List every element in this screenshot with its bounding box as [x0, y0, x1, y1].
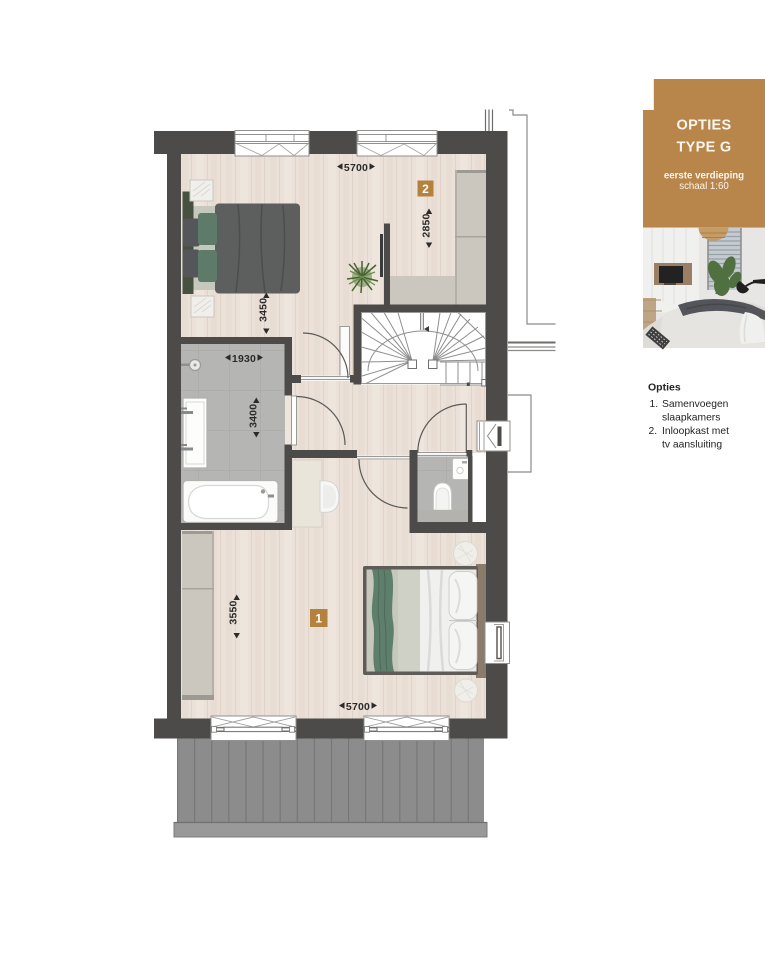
svg-text:2850: 2850 — [421, 213, 433, 237]
svg-text:1.: 1. — [650, 399, 659, 410]
svg-text:TYPE G: TYPE G — [677, 140, 732, 156]
svg-text:OPTIES: OPTIES — [677, 118, 732, 134]
svg-text:3450: 3450 — [257, 298, 269, 322]
svg-text:1930: 1930 — [232, 353, 256, 365]
svg-text:schaal 1:60: schaal 1:60 — [679, 181, 729, 192]
svg-text:slaapkamers: slaapkamers — [662, 413, 720, 424]
svg-text:tv aansluiting: tv aansluiting — [662, 440, 722, 451]
svg-text:Inloopkast met: Inloopkast met — [662, 426, 729, 437]
svg-text:2: 2 — [422, 182, 429, 196]
svg-text:Samenvoegen: Samenvoegen — [662, 399, 729, 410]
svg-text:3550: 3550 — [228, 600, 240, 624]
svg-text:5700: 5700 — [346, 701, 370, 713]
svg-text:3400: 3400 — [247, 404, 259, 428]
svg-text:eerste verdieping: eerste verdieping — [664, 171, 744, 182]
svg-text:2.: 2. — [649, 426, 658, 437]
svg-text:5700: 5700 — [344, 162, 368, 174]
svg-text:Opties: Opties — [648, 382, 681, 394]
svg-text:1: 1 — [315, 612, 322, 626]
